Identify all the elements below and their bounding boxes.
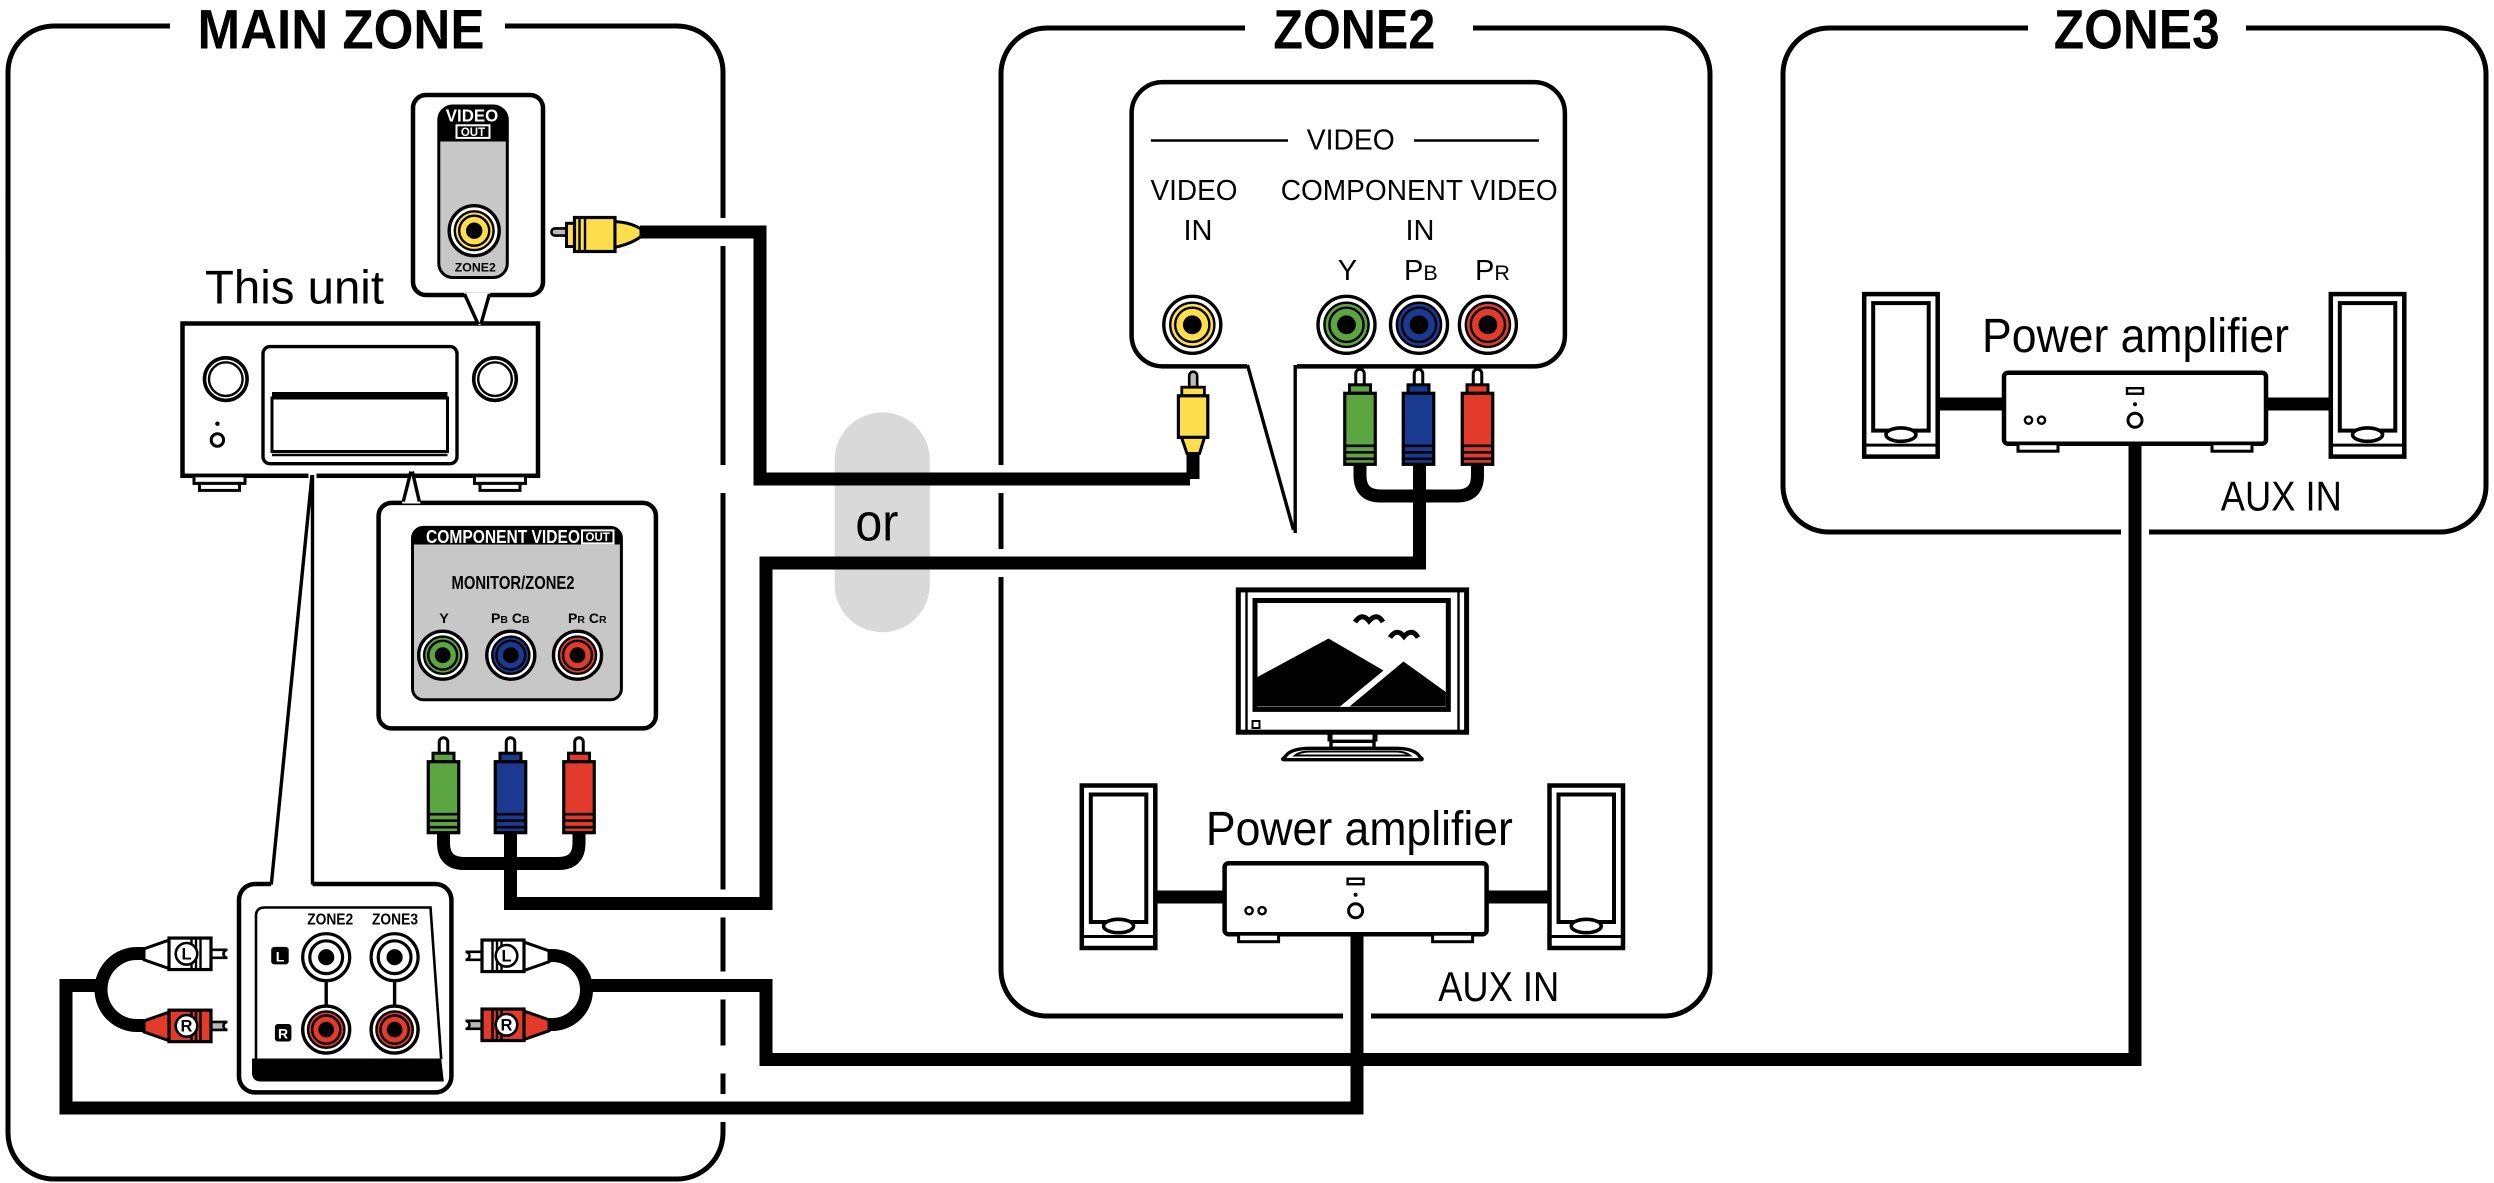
svg-text:L: L [181, 946, 191, 964]
svg-text:L: L [276, 949, 285, 965]
svg-text:VIDEO: VIDEO [446, 106, 499, 126]
svg-text:MAIN ZONE: MAIN ZONE [198, 0, 485, 61]
svg-text:L: L [501, 948, 511, 966]
svg-text:IN: IN [1406, 215, 1435, 247]
svg-text:MONITOR/ZONE2: MONITOR/ZONE2 [452, 573, 575, 593]
svg-text:or: or [855, 494, 898, 553]
svg-text:ZONE2: ZONE2 [307, 912, 353, 929]
svg-text:ZONE2: ZONE2 [1273, 0, 1435, 61]
svg-text:AUX IN: AUX IN [2221, 473, 2342, 520]
svg-text:Power amplifier: Power amplifier [1982, 310, 2289, 363]
svg-text:R: R [181, 1018, 193, 1036]
svg-text:R: R [501, 1017, 513, 1035]
svg-text:OUT: OUT [586, 532, 610, 544]
svg-text:Power amplifier: Power amplifier [1206, 803, 1513, 856]
svg-text:Y: Y [1338, 255, 1357, 287]
svg-text:ZONE3: ZONE3 [372, 912, 418, 929]
svg-text:Y: Y [439, 610, 449, 626]
svg-text:IN: IN [1184, 215, 1213, 247]
svg-text:COMPONENT VIDEO: COMPONENT VIDEO [1281, 175, 1558, 207]
svg-text:R: R [278, 1026, 288, 1042]
svg-text:VIDEO: VIDEO [1307, 125, 1395, 157]
svg-text:This unit: This unit [205, 262, 384, 315]
svg-text:AUX IN: AUX IN [1438, 963, 1559, 1010]
svg-text:VIDEO: VIDEO [1151, 175, 1238, 207]
svg-text:COMPONENT VIDEO: COMPONENT VIDEO [426, 527, 580, 547]
svg-text:OUT: OUT [461, 127, 485, 139]
svg-text:ZONE3: ZONE3 [2054, 0, 2220, 61]
svg-text:ZONE2: ZONE2 [455, 261, 496, 275]
